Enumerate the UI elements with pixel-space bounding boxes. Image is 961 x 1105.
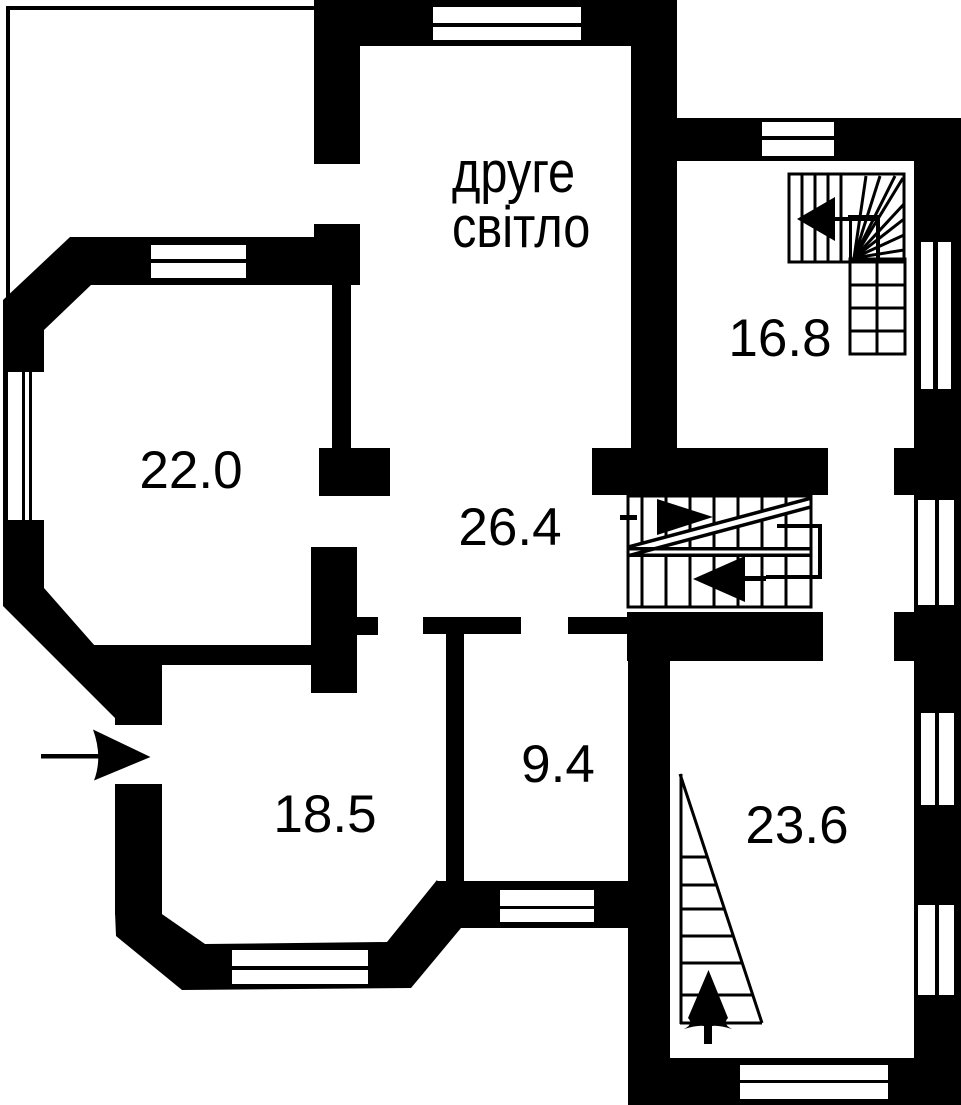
svg-text:22.0: 22.0: [139, 441, 242, 500]
svg-text:світло: світло: [452, 196, 590, 260]
svg-text:18.5: 18.5: [273, 785, 376, 844]
svg-text:9.4: 9.4: [521, 735, 595, 794]
svg-text:16.8: 16.8: [728, 309, 831, 368]
svg-text:26.4: 26.4: [458, 498, 561, 557]
svg-text:23.6: 23.6: [745, 796, 848, 855]
